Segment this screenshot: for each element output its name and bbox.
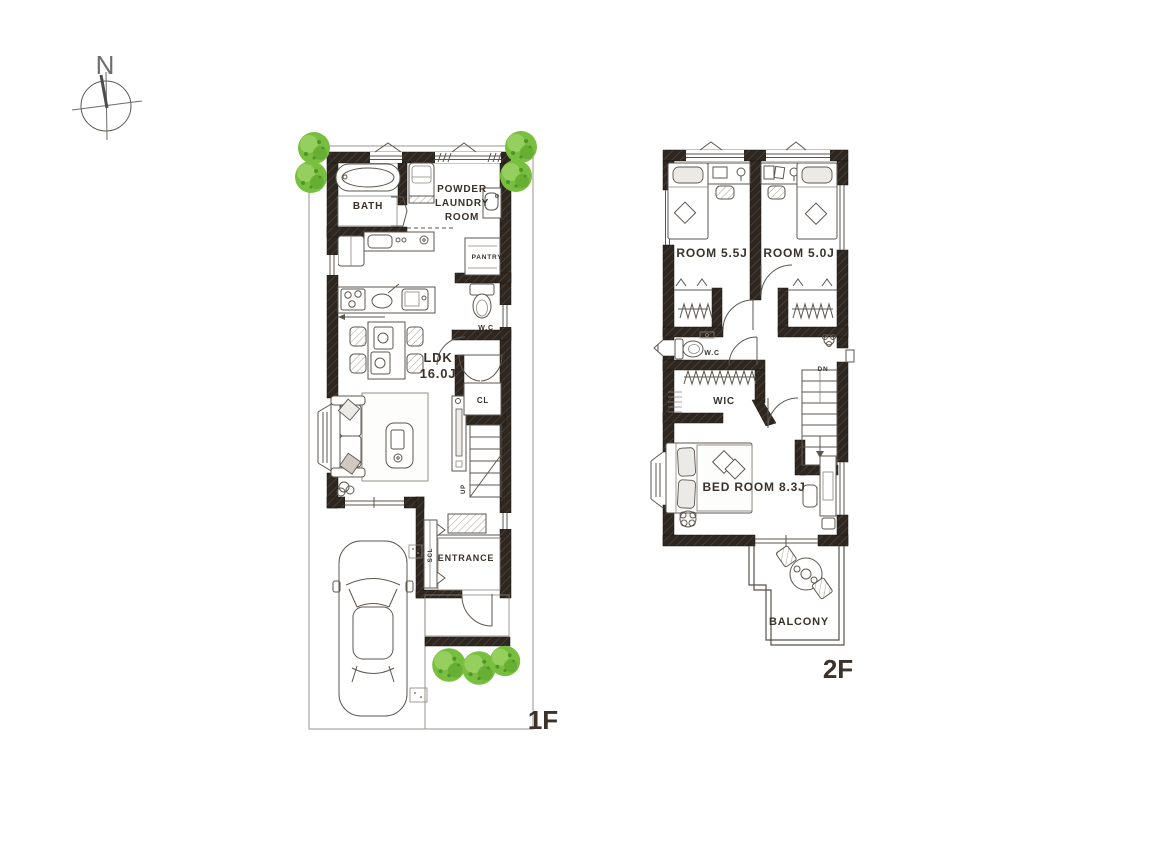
floor2-plan: ROOM 5.5J (651, 142, 854, 684)
desk-chair (768, 186, 785, 199)
floor2-label: 2F (823, 654, 853, 684)
entrance-area: SCL ENTRANCE (424, 513, 511, 636)
floorplan-page: N (0, 0, 1150, 865)
wc-bay-window (654, 340, 663, 356)
powder-label-1: POWDER (437, 184, 487, 195)
bedroom-bay-window (651, 452, 663, 508)
room55-label: ROOM 5.5J (676, 246, 747, 260)
scl-label: SCL (428, 548, 434, 562)
wc-2f-label: W.C (704, 350, 720, 357)
entrance-tiles (438, 538, 500, 590)
kitchen (338, 232, 435, 320)
living-area (331, 393, 466, 508)
sofa (331, 396, 365, 477)
tree (432, 648, 466, 682)
dining-chair (350, 327, 366, 346)
pantry-label: PANTRY (472, 254, 503, 261)
wic-label: WIC (713, 396, 735, 407)
closet-room50 (788, 279, 837, 318)
balcony-label: BALCONY (769, 616, 829, 628)
bed-room55 (668, 163, 708, 239)
dining-chair (407, 327, 423, 346)
toilet-tank-1f (470, 284, 494, 295)
closet-room55 (674, 279, 712, 318)
pantry: PANTRY (465, 238, 502, 275)
room-50: ROOM 5.0J (761, 163, 837, 347)
tree (490, 646, 520, 676)
desk-room55 (708, 163, 750, 199)
dining-area: LDK 16.0J (350, 322, 456, 381)
toilet-bowl-2f (683, 341, 703, 357)
tree (500, 160, 532, 192)
porch-tiles (425, 595, 509, 636)
staircase-2f: DN (802, 366, 837, 465)
tree (298, 132, 330, 164)
dining-chair (350, 354, 366, 373)
wic: WIC (668, 371, 756, 412)
floor1-plan: BATH POWDER LAUNDRY ROOM PANTRY (295, 131, 558, 735)
bath-room: BATH (336, 164, 407, 226)
floorplan-canvas: N (0, 0, 1150, 865)
compass-rose: N (72, 50, 142, 140)
stairs-up-label: UP (461, 484, 467, 494)
balcony: BALCONY (749, 545, 844, 645)
desk-room50 (761, 163, 801, 199)
powder-label-2: LAUNDRY (435, 198, 489, 209)
kitchen-island (338, 287, 435, 313)
desk-chair (716, 186, 734, 199)
bed-room50 (797, 163, 837, 239)
coffee-table (386, 423, 413, 468)
staircase-1f: UP (461, 425, 501, 497)
room-55: ROOM 5.5J (668, 163, 750, 318)
plant-1f (337, 482, 354, 496)
room50-label: ROOM 5.0J (763, 246, 834, 260)
double-bed (666, 443, 752, 513)
cl-label: CL (477, 396, 489, 405)
entrance-label: ENTRANCE (438, 553, 494, 563)
balcony-sliding-door (755, 535, 818, 546)
room55-door (723, 300, 753, 330)
bedroom-stool (822, 518, 835, 529)
floor1-label: 1F (528, 705, 558, 735)
closet-cl: CL (458, 355, 502, 415)
tree (295, 161, 327, 193)
compass-north-label: N (96, 50, 115, 80)
bedroom-83: BED ROOM 8.3J (666, 443, 836, 529)
powder-laundry-room: POWDER LAUNDRY ROOM (407, 163, 501, 228)
stairs-dn-label: DN (818, 366, 829, 373)
entrance-mat (448, 514, 486, 533)
tv (456, 409, 462, 456)
wc-1f-label: W.C (478, 325, 494, 332)
toilet-bowl-1f (473, 294, 491, 318)
front-door (462, 594, 492, 626)
toilet-tank-2f (675, 339, 683, 359)
washing-machine (409, 163, 434, 199)
bedroom-label: BED ROOM 8.3J (702, 480, 805, 494)
ldk-label-1: LDK (423, 350, 452, 365)
car (333, 541, 413, 716)
cl-double-doors (458, 355, 502, 381)
tree (505, 131, 537, 163)
bath-label: BATH (353, 201, 383, 212)
powder-label-3: ROOM (445, 212, 479, 223)
ldk-label-2: 16.0J (420, 366, 457, 381)
